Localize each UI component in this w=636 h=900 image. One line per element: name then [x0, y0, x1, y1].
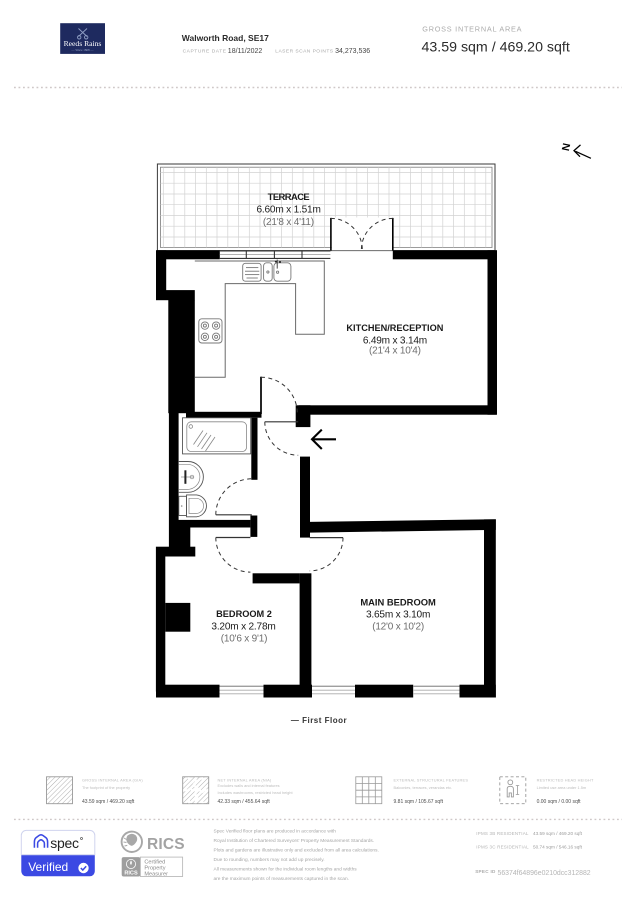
- svg-text:Includes washrooms, restricted: Includes washrooms, restricted head heig…: [218, 790, 294, 795]
- svg-text:CAPTURE DATE: CAPTURE DATE: [183, 49, 227, 55]
- svg-text:Measurer: Measurer: [144, 871, 168, 877]
- svg-text:SPEC ID: SPEC ID: [475, 869, 496, 874]
- svg-text:43.59 sqm / 469.20 sqft: 43.59 sqm / 469.20 sqft: [82, 799, 135, 805]
- svg-text:(21'4 x 10'4): (21'4 x 10'4): [369, 346, 421, 357]
- svg-text:Balconies, terraces, verandas: Balconies, terraces, verandas etc.: [394, 785, 453, 790]
- svg-text:50.74 sqm / 546.16 sqft: 50.74 sqm / 546.16 sqft: [533, 845, 583, 850]
- svg-text:9.81 sqm / 105.67 sqft: 9.81 sqm / 105.67 sqft: [394, 799, 444, 805]
- svg-text:3.20m x 2.78m: 3.20m x 2.78m: [211, 621, 275, 632]
- svg-text:IPMS 3C RESIDENTIAL: IPMS 3C RESIDENTIAL: [476, 845, 529, 850]
- svg-text:All measurements shown for the: All measurements shown for the individua…: [214, 866, 358, 872]
- svg-text:— Since 1868 —: — Since 1868 —: [70, 48, 94, 52]
- svg-text:NET INTERNAL AREA (NIA): NET INTERNAL AREA (NIA): [218, 778, 272, 783]
- svg-text:RICS: RICS: [147, 836, 185, 853]
- svg-text:43.59 sqm / 469.20 sqft: 43.59 sqm / 469.20 sqft: [422, 40, 570, 56]
- svg-text:Reeds Rains: Reeds Rains: [64, 39, 102, 48]
- svg-text:KITCHEN/RECEPTION: KITCHEN/RECEPTION: [346, 323, 443, 333]
- svg-text:N: N: [560, 142, 573, 152]
- svg-text:The footprint of the property: The footprint of the property: [82, 785, 130, 790]
- svg-text:56374f64896e0210dcc312882: 56374f64896e0210dcc312882: [498, 870, 591, 877]
- svg-text:IPMS 3B RESIDENTIAL: IPMS 3B RESIDENTIAL: [476, 831, 529, 836]
- svg-text:42.33 sqm / 455.64 sqft: 42.33 sqm / 455.64 sqft: [218, 799, 271, 805]
- svg-text:6.60m x 1.51m: 6.60m x 1.51m: [257, 205, 321, 216]
- svg-text:EXTERNAL STRUCTURAL FEATURES: EXTERNAL STRUCTURAL FEATURES: [394, 778, 469, 783]
- svg-text:18/11/2022: 18/11/2022: [228, 48, 263, 55]
- svg-text:Limited use area under 1.5m: Limited use area under 1.5m: [537, 785, 587, 790]
- svg-text:spec: spec: [50, 835, 79, 851]
- svg-text:RICS: RICS: [124, 871, 138, 877]
- svg-text:LASER SCAN POINTS: LASER SCAN POINTS: [275, 49, 333, 55]
- svg-text:(12'0 x 10'2): (12'0 x 10'2): [372, 622, 424, 633]
- svg-text:43.59 sqm / 469.20 sqft: 43.59 sqm / 469.20 sqft: [533, 831, 583, 836]
- svg-text:GROSS INTERNAL AREA (GIA): GROSS INTERNAL AREA (GIA): [82, 778, 143, 783]
- svg-text:Spec Verified floor plans are: Spec Verified floor plans are produced i…: [214, 828, 337, 834]
- svg-text:RESTRICTED HEAD HEIGHT: RESTRICTED HEAD HEIGHT: [537, 778, 594, 783]
- svg-text:Excludes walls and internal fe: Excludes walls and internal features: [218, 783, 280, 788]
- svg-text:BEDROOM 2: BEDROOM 2: [216, 609, 272, 619]
- svg-text:3.65m x 3.10m: 3.65m x 3.10m: [366, 610, 430, 621]
- svg-text:(10'6 x 9'1): (10'6 x 9'1): [221, 633, 267, 644]
- svg-text:(21'8 x 4'11): (21'8 x 4'11): [263, 217, 314, 228]
- svg-text:MAIN BEDROOM: MAIN BEDROOM: [360, 596, 436, 607]
- svg-text:are the maximum points of meas: are the maximum points of measurements c…: [214, 876, 349, 882]
- svg-text:0.00 sqm / 0.00 sqft: 0.00 sqm / 0.00 sqft: [537, 799, 582, 805]
- svg-text:Plots and gardens are illustra: Plots and gardens are illustrative only …: [214, 847, 379, 853]
- svg-text:Verified: Verified: [28, 860, 68, 874]
- svg-text:34,273,536: 34,273,536: [335, 48, 370, 55]
- svg-text:Walworth Road, SE17: Walworth Road, SE17: [182, 33, 269, 43]
- svg-text:Royal Institution of Chartered: Royal Institution of Chartered Surveyors…: [214, 838, 375, 844]
- svg-text:— First Floor: — First Floor: [291, 716, 347, 725]
- svg-text:Due to rounding, numbers may n: Due to rounding, numbers may not add up …: [214, 857, 325, 863]
- svg-text:TERRACE: TERRACE: [268, 191, 310, 202]
- svg-text:GROSS INTERNAL AREA: GROSS INTERNAL AREA: [422, 25, 522, 34]
